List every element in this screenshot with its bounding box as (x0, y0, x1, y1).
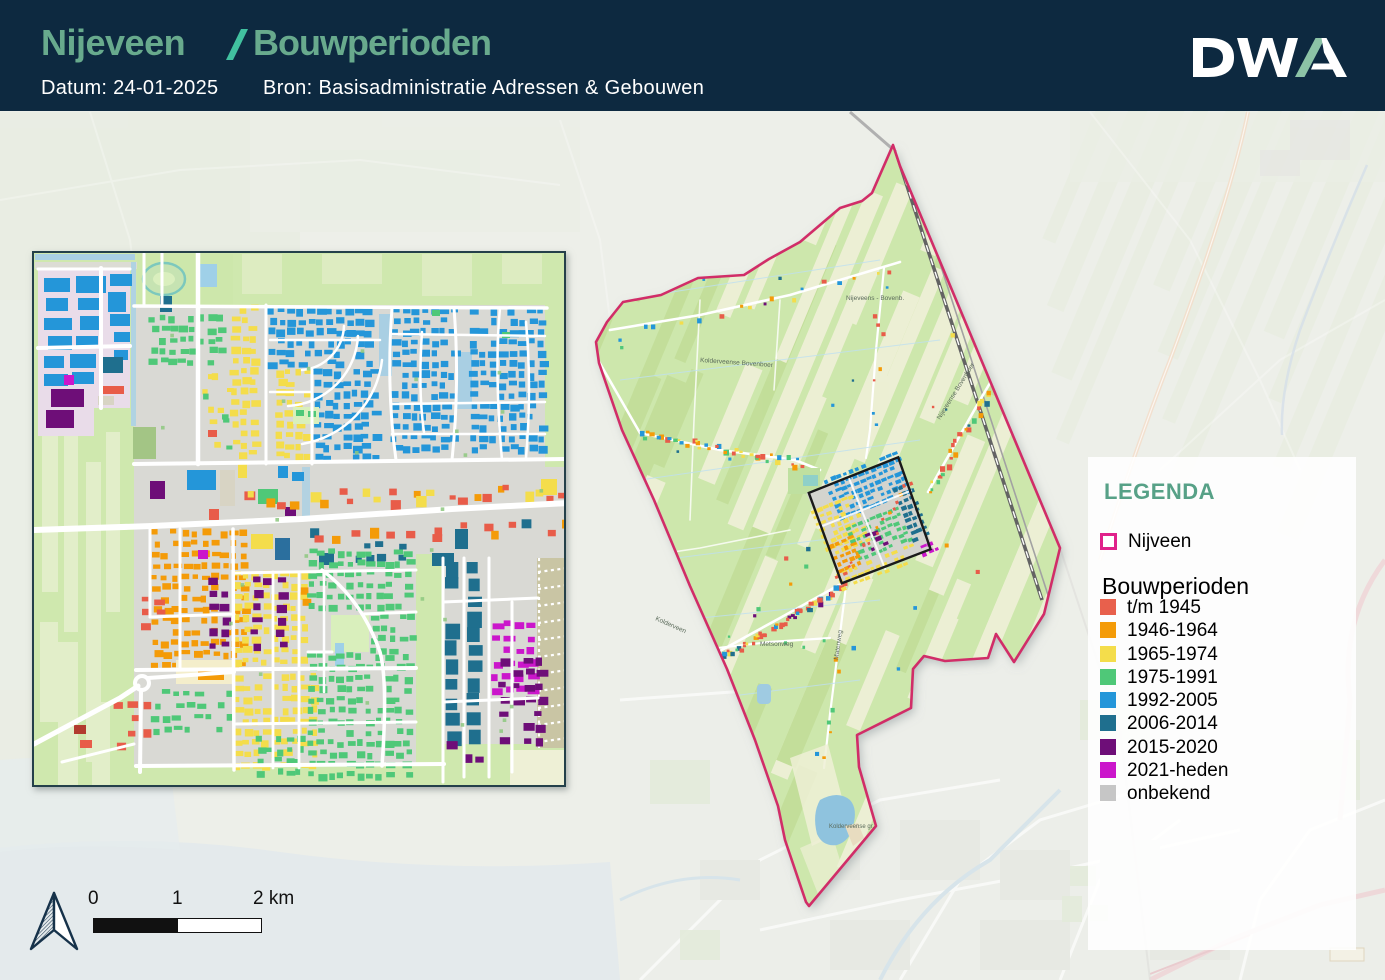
svg-text:Nijeveens - Bovenb.: Nijeveens - Bovenb. (846, 295, 904, 302)
svg-text:Kolderveen: Kolderveen (654, 615, 687, 635)
svg-text:Metsonweg: Metsonweg (760, 641, 794, 648)
svg-text:Kolderveense gr.: Kolderveense gr. (829, 824, 874, 830)
